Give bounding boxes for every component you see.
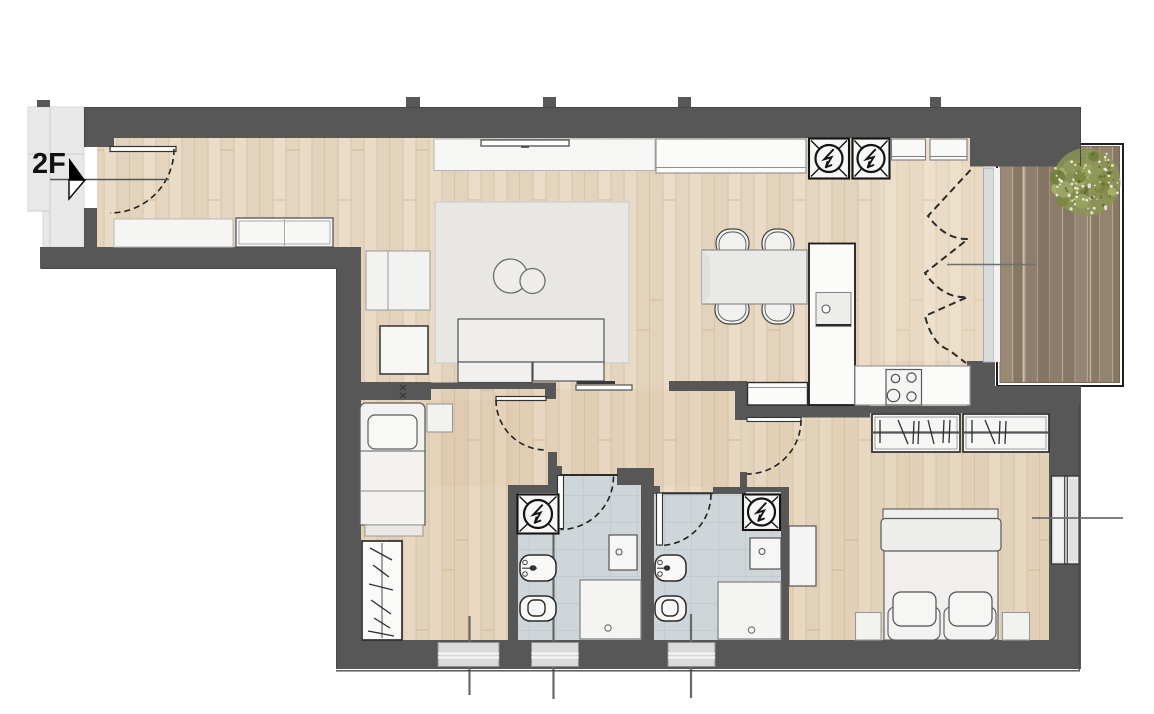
svg-text:2F: 2F — [32, 148, 66, 180]
